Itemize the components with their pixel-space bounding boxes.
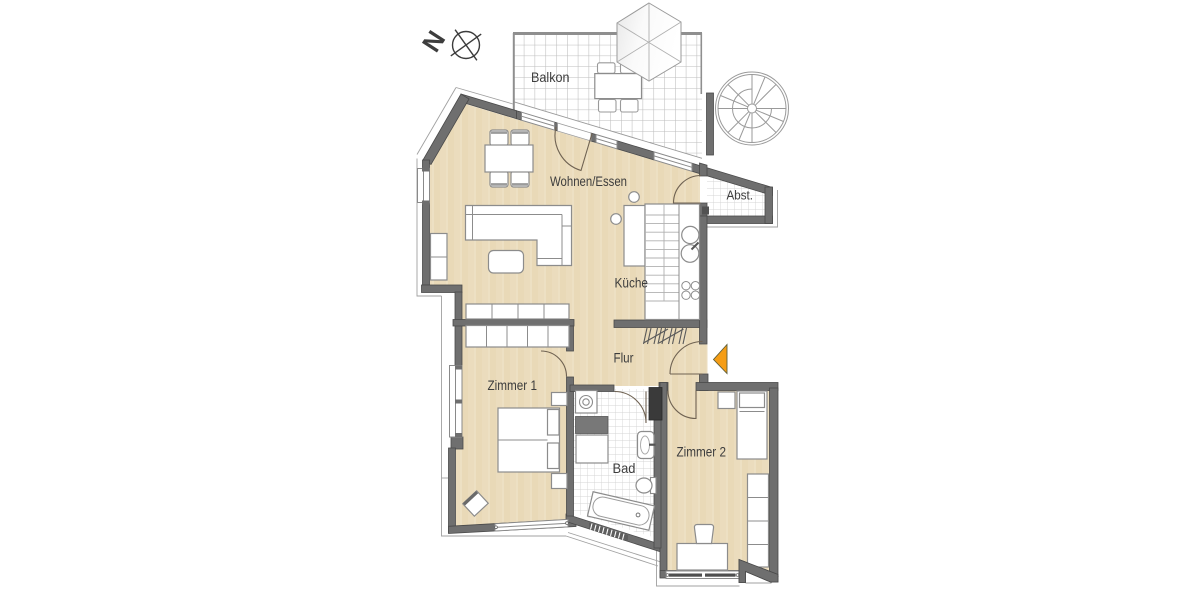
svg-text:Zimmer 1: Zimmer 1 <box>488 377 538 393</box>
svg-text:Wohnen/Essen: Wohnen/Essen <box>550 173 627 189</box>
svg-text:Flur: Flur <box>614 350 634 366</box>
svg-text:Küche: Küche <box>615 275 649 291</box>
svg-text:Zimmer 2: Zimmer 2 <box>677 444 727 460</box>
svg-text:Bad: Bad <box>613 460 636 476</box>
svg-text:Balkon: Balkon <box>531 69 570 85</box>
svg-text:Abst.: Abst. <box>727 189 754 203</box>
